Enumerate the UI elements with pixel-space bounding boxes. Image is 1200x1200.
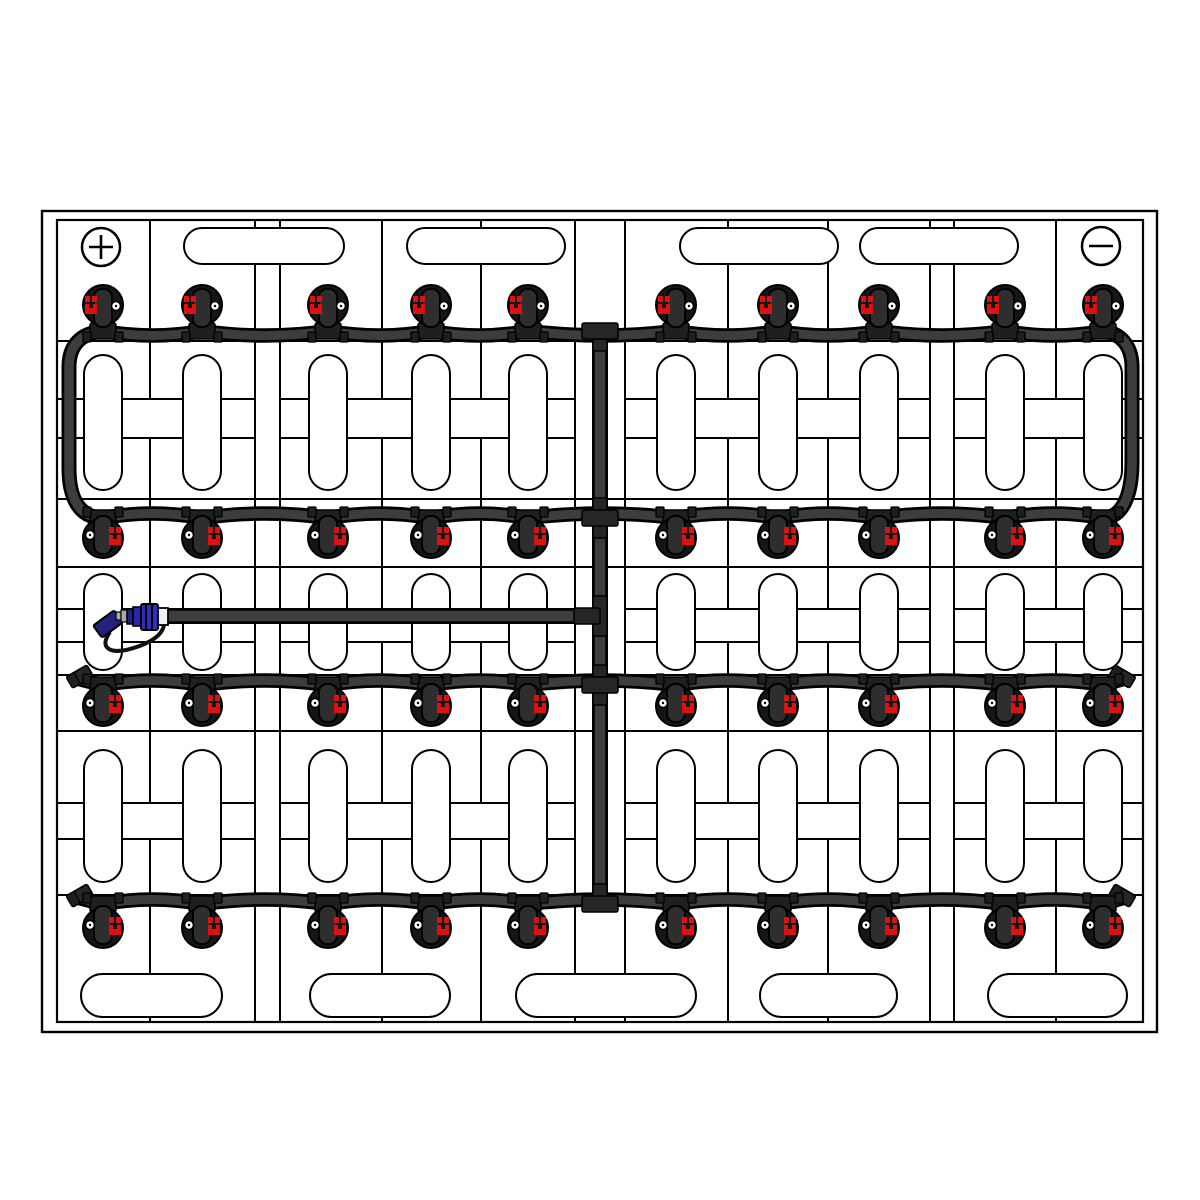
red-marker [341,527,346,533]
negative-terminal-icon [1082,227,1120,265]
red-marker [885,917,890,923]
valve-tab-ear [540,507,548,517]
valve-tab-ear [1083,332,1091,342]
valve-tab-ear [540,332,548,342]
red-marker-notch [1015,703,1019,707]
float-indicator-dot [991,702,993,704]
float-indicator-dot [865,702,867,704]
red-marker [784,917,789,923]
watering-valve [985,285,1025,342]
red-marker-notch [314,304,318,308]
float-indicator-dot [514,924,516,926]
red-marker-notch [441,535,445,539]
valve-tab-ear [985,332,993,342]
red-marker [1018,695,1023,701]
red-marker [215,917,220,923]
vent-capsule [309,355,347,490]
float-indicator-dot [688,305,690,307]
red-marker [420,296,425,302]
valve-tab-ear [308,674,316,684]
valve-tab-ear [340,332,348,342]
watering-valve [985,893,1025,948]
red-marker-notch [865,304,869,308]
red-marker [689,527,694,533]
valve-tab-ear [308,893,316,903]
watering-valve [656,893,696,948]
watering-valve [83,507,123,558]
valve-tab-ear [1083,893,1091,903]
valve-tab-ear [1115,674,1123,684]
valve-tab-ear [540,674,548,684]
red-marker [334,695,339,701]
red-marker-notch [514,304,518,308]
vent-capsule-horizontal [860,228,1018,264]
watering-valve [411,285,451,342]
watering-valve [1083,674,1123,726]
red-marker-notch [764,304,768,308]
red-marker-notch [212,535,216,539]
red-marker [861,296,866,302]
red-marker [541,695,546,701]
float-indicator-dot [991,924,993,926]
red-marker [334,527,339,533]
red-marker [1092,296,1097,302]
red-marker [116,695,121,701]
red-marker-notch [538,535,542,539]
red-marker-notch [538,925,542,929]
valve-tab-ear [1083,507,1091,517]
red-marker-notch [113,925,117,929]
watering-valve [83,893,123,948]
valve-tab-ear [790,507,798,517]
fitting-bar [582,510,618,526]
red-marker [1116,695,1121,701]
float-indicator-dot [340,305,342,307]
valve-tab-ear [1115,507,1123,517]
valve-tab-ear [859,507,867,517]
red-marker [892,695,897,701]
red-marker [444,527,449,533]
float-indicator-dot [214,305,216,307]
float-indicator-dot [991,534,993,536]
red-marker [689,695,694,701]
fitting-bar [574,608,600,624]
valve-tab-ear [758,674,766,684]
valve-tab-ear [340,893,348,903]
watering-valve [859,674,899,726]
red-marker-notch [188,304,192,308]
vent-capsule [84,355,122,490]
valve-tab-ear [340,674,348,684]
red-marker-notch [113,535,117,539]
red-marker [310,296,315,302]
vent-capsule [657,355,695,490]
vent-capsule [509,355,547,490]
valve-tab-ear [1017,332,1025,342]
valve-tab-ear [443,507,451,517]
watering-valve [656,285,696,342]
red-marker [116,527,121,533]
vent-capsule-horizontal [680,228,838,264]
red-marker [885,695,890,701]
float-indicator-dot [514,534,516,536]
vent-capsule [860,574,898,670]
red-marker [658,296,663,302]
watering-valve [1083,507,1123,558]
valve-tab-ear [1017,507,1025,517]
valve-tab-ear [214,674,222,684]
valve-tab-ear [1115,893,1123,903]
red-marker [784,527,789,533]
valve-tab-ear [891,332,899,342]
vent-capsule [986,750,1024,882]
valve-tab-ear [758,507,766,517]
red-marker [317,296,322,302]
watering-valve [508,674,548,726]
watering-valve [1083,285,1123,342]
red-marker [534,695,539,701]
red-marker-notch [113,703,117,707]
red-marker [1109,695,1114,701]
watering-valve [308,893,348,948]
valve-tab-ear [182,674,190,684]
red-marker [1109,527,1114,533]
red-marker [1116,527,1121,533]
watering-valve [83,285,123,342]
red-marker [994,296,999,302]
red-marker [791,695,796,701]
red-marker-notch [1113,925,1117,929]
watering-valve [758,507,798,558]
red-marker [85,296,90,302]
watering-valve [859,285,899,342]
red-marker [987,296,992,302]
red-marker-notch [338,535,342,539]
valve-tab-ear [891,893,899,903]
valve-tab-ear [656,674,664,684]
valve-tab-ear [83,893,91,903]
valve-tab-ear [508,332,516,342]
red-marker-notch [686,535,690,539]
watering-valve [508,285,548,342]
vent-capsule [1084,355,1122,490]
red-marker [444,917,449,923]
valve-tab-ear [859,893,867,903]
valve-tab-ear [214,507,222,517]
valve-tab-ear [656,507,664,517]
watering-valve [182,285,222,342]
red-marker-notch [889,703,893,707]
red-marker [767,296,772,302]
red-marker [682,917,687,923]
float-indicator-dot [89,534,91,536]
vent-capsule [759,574,797,670]
float-indicator-dot [790,305,792,307]
red-marker-notch [662,304,666,308]
valve-tab-ear [688,332,696,342]
float-indicator-dot [188,924,190,926]
float-indicator-dot [891,305,893,307]
red-marker [689,917,694,923]
valve-tab-ear [985,507,993,517]
red-marker [208,917,213,923]
red-marker [682,695,687,701]
red-marker-notch [212,703,216,707]
red-marker-notch [417,304,421,308]
valve-tab-ear [508,507,516,517]
float-indicator-dot [417,702,419,704]
vent-capsule-horizontal [988,974,1127,1017]
valve-tab-ear [308,332,316,342]
float-indicator-dot [89,924,91,926]
valve-tab-ear [443,674,451,684]
vent-capsule [183,750,221,882]
float-indicator-dot [1089,924,1091,926]
red-marker [437,917,442,923]
red-marker [334,917,339,923]
valve-tab-ear [214,332,222,342]
red-marker-notch [889,535,893,539]
watering-valve [508,893,548,948]
float-indicator-dot [443,305,445,307]
red-marker [1109,917,1114,923]
red-marker-notch [338,703,342,707]
red-marker [437,527,442,533]
red-marker [341,695,346,701]
red-marker [1085,296,1090,302]
valve-tab-ear [182,893,190,903]
watering-valve [83,674,123,726]
red-marker [215,527,220,533]
red-marker [760,296,765,302]
valve-tab-ear [1083,674,1091,684]
watering-valve [1083,893,1123,948]
red-marker [517,296,522,302]
valve-tab-ear [411,507,419,517]
red-marker-notch [788,703,792,707]
red-marker [191,296,196,302]
red-marker-notch [1113,703,1117,707]
valve-tab-ear [859,332,867,342]
valve-tab-ear [115,674,123,684]
float-indicator-dot [764,924,766,926]
diagram-page [0,0,1200,1200]
watering-valve [985,674,1025,726]
valve-tab-ear [790,893,798,903]
float-indicator-dot [89,702,91,704]
float-indicator-dot [314,702,316,704]
valve-tab-ear [1017,674,1025,684]
valve-tab-ear [790,332,798,342]
red-marker [682,527,687,533]
valve-tab-ear [214,893,222,903]
float-indicator-dot [1089,702,1091,704]
red-marker [541,527,546,533]
red-marker-notch [1015,535,1019,539]
vent-capsule-horizontal [407,228,565,264]
valve-tab-ear [656,332,664,342]
watering-valve [182,507,222,558]
fitting-bar [582,323,618,339]
float-indicator-dot [1017,305,1019,307]
watering-valve [656,674,696,726]
red-marker [341,917,346,923]
red-marker-notch [686,925,690,929]
red-marker [109,917,114,923]
watering-valve [182,893,222,948]
valve-tab-ear [688,893,696,903]
vent-capsule [657,574,695,670]
red-marker-notch [1089,304,1093,308]
red-marker-notch [89,304,93,308]
watering-valve [411,507,451,558]
battery-watering-diagram [0,0,1200,1200]
red-marker [1011,695,1016,701]
valve-tab-ear [508,674,516,684]
coupling-ribs [133,607,141,626]
float-indicator-dot [188,702,190,704]
valve-tab-ear [308,507,316,517]
red-marker [437,695,442,701]
red-marker-notch [441,925,445,929]
red-marker-notch [1113,535,1117,539]
red-marker [208,695,213,701]
vent-capsule [84,750,122,882]
valve-tab-ear [443,893,451,903]
vent-capsule [412,750,450,882]
red-marker [791,527,796,533]
vent-capsule [509,750,547,882]
valve-tab-ear [83,507,91,517]
vent-capsule [759,355,797,490]
vent-capsule [759,750,797,882]
red-marker [208,527,213,533]
red-marker [868,296,873,302]
valve-tab-ear [411,893,419,903]
vent-capsule [657,750,695,882]
red-marker [92,296,97,302]
vent-capsule [412,355,450,490]
vent-capsule [860,355,898,490]
valve-tab-ear [985,674,993,684]
red-marker-notch [788,535,792,539]
vent-capsule [986,574,1024,670]
valve-tab-ear [891,674,899,684]
float-indicator-dot [540,305,542,307]
red-marker [1116,917,1121,923]
watering-valve [308,674,348,726]
valve-tab-ear [340,507,348,517]
float-indicator-dot [662,702,664,704]
red-marker [109,695,114,701]
vent-capsule-horizontal [760,974,897,1017]
vent-capsule [183,355,221,490]
float-indicator-dot [188,534,190,536]
red-marker [215,695,220,701]
watering-valve [859,893,899,948]
float-indicator-dot [1089,534,1091,536]
red-marker [892,917,897,923]
red-marker [1018,917,1023,923]
watering-valve [182,674,222,726]
float-indicator-dot [865,924,867,926]
valve-tab-ear [443,332,451,342]
valve-tab-ear [891,507,899,517]
coupling-neck [127,609,133,624]
red-marker [534,917,539,923]
valve-tab-ear [411,332,419,342]
valve-tab-ear [1017,893,1025,903]
vent-capsule-horizontal [310,974,450,1017]
red-marker-notch [538,703,542,707]
float-indicator-dot [865,534,867,536]
valve-tab-ear [182,507,190,517]
red-marker-notch [441,703,445,707]
valve-tab-ear [656,893,664,903]
valve-tab-ear [758,332,766,342]
vent-capsule [860,750,898,882]
red-marker [784,695,789,701]
valve-tab-ear [985,893,993,903]
watering-valve [508,507,548,558]
watering-valve [859,507,899,558]
vent-capsule-horizontal [516,974,696,1017]
vent-capsule [309,750,347,882]
red-marker [665,296,670,302]
watering-valve [308,507,348,558]
red-marker [109,527,114,533]
coupling-barrel [141,604,158,630]
watering-valve [411,674,451,726]
watering-valve [758,285,798,342]
valve-tab-ear [508,893,516,903]
red-marker [444,695,449,701]
valve-tab-ear [688,674,696,684]
red-marker [116,917,121,923]
vent-capsule-horizontal [81,974,222,1017]
red-marker [534,527,539,533]
coupling-tip [121,610,127,622]
valve-tab-ear [115,332,123,342]
watering-valve [758,674,798,726]
valve-tab-ear [758,893,766,903]
valve-tab-ear [182,332,190,342]
fitting-bar [582,896,618,912]
watering-valve [308,285,348,342]
red-marker-notch [686,703,690,707]
float-indicator-dot [662,534,664,536]
float-indicator-dot [417,924,419,926]
red-marker [184,296,189,302]
float-indicator-dot [514,702,516,704]
valve-tab-ear [115,893,123,903]
valve-tab-ear [540,893,548,903]
float-indicator-dot [314,924,316,926]
valve-tab-ear [859,674,867,684]
positive-terminal-icon [82,228,120,266]
valve-tab-ear [83,674,91,684]
valve-tab-ear [411,674,419,684]
red-marker-notch [889,925,893,929]
red-marker [510,296,515,302]
red-marker-notch [338,925,342,929]
vent-capsule [1084,750,1122,882]
coupling-collar [158,608,168,625]
red-marker [885,527,890,533]
watering-valve [656,507,696,558]
valve-tab-ear [1115,332,1123,342]
red-marker [541,917,546,923]
